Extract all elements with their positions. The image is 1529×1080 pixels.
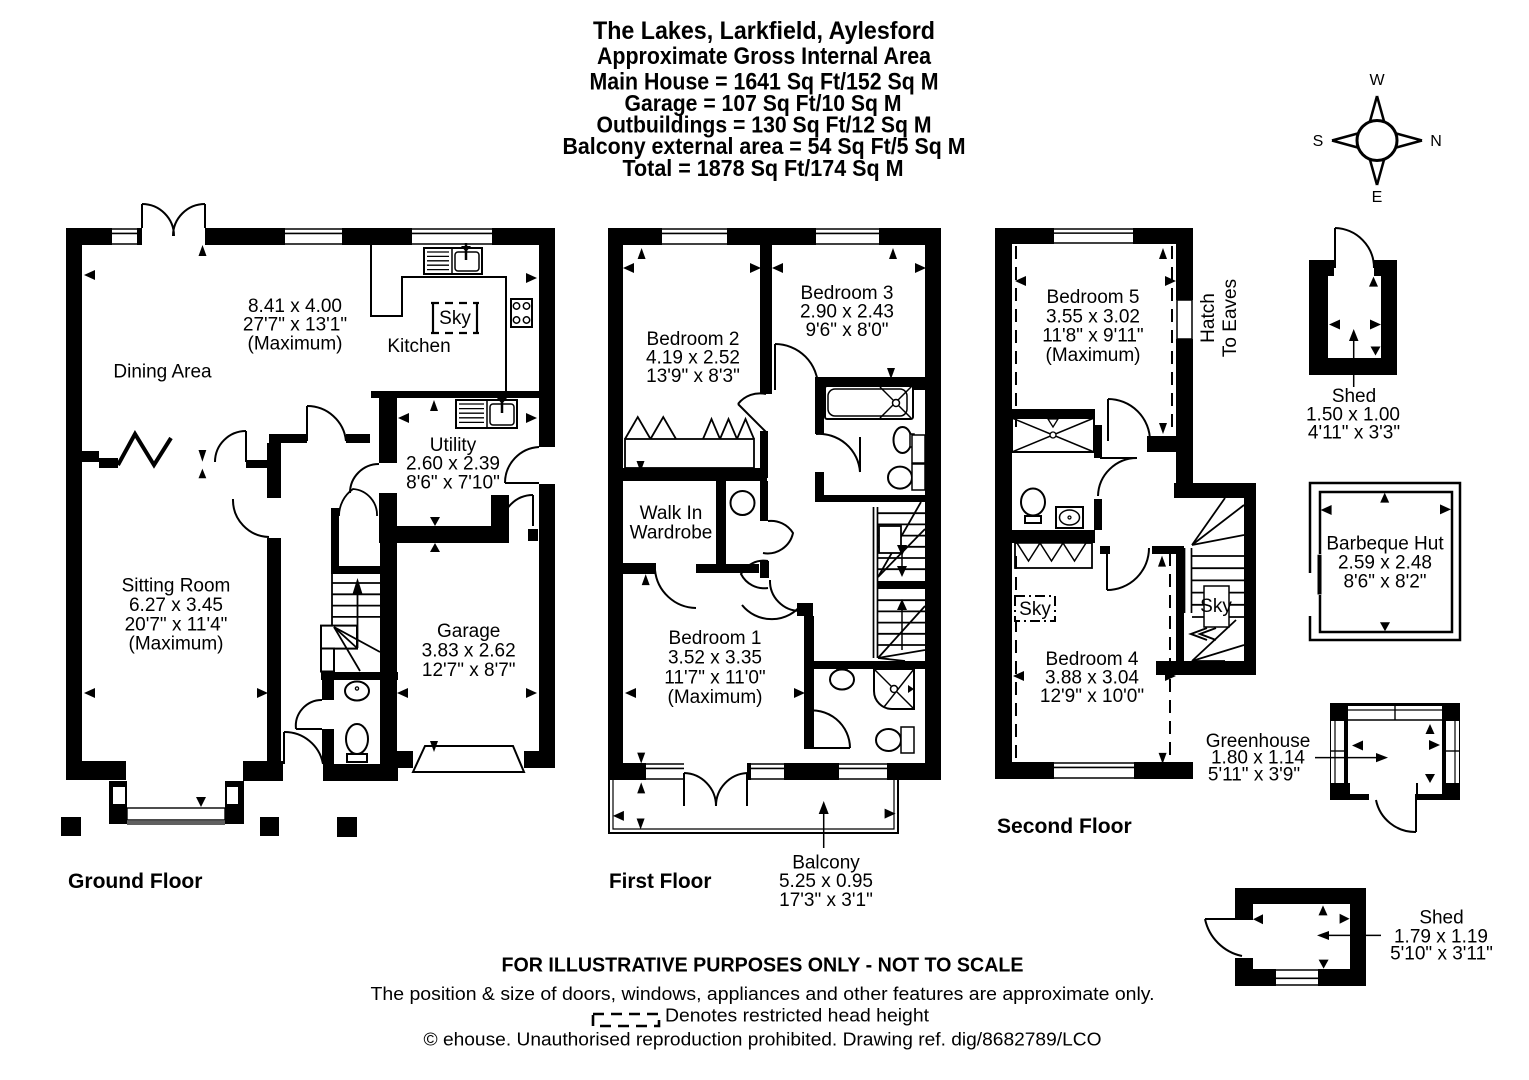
svg-text:3.55 x 3.02: 3.55 x 3.02: [1046, 306, 1140, 327]
svg-text:© ehouse. Unauthorised reprodu: © ehouse. Unauthorised reproduction proh…: [424, 1029, 1102, 1050]
svg-text:W: W: [1369, 72, 1385, 89]
svg-text:E: E: [1372, 189, 1383, 206]
svg-text:Dining Area: Dining Area: [113, 361, 212, 382]
svg-text:To Eaves: To Eaves: [1220, 279, 1241, 357]
svg-text:(Maximum): (Maximum): [129, 634, 224, 655]
svg-text:13'9" x 8'3": 13'9" x 8'3": [646, 366, 740, 387]
svg-text:Denotes restricted head height: Denotes restricted head height: [665, 1005, 930, 1026]
svg-text:Bedroom 5: Bedroom 5: [1047, 287, 1140, 308]
svg-text:3.83 x 2.62: 3.83 x 2.62: [422, 640, 516, 661]
svg-text:Total = 1878 Sq Ft/174 Sq M: Total = 1878 Sq Ft/174 Sq M: [623, 155, 904, 181]
svg-text:11'7" x 11'0": 11'7" x 11'0": [664, 667, 765, 688]
svg-text:5'10" x 3'11": 5'10" x 3'11": [1390, 943, 1493, 964]
svg-text:8'6" x 8'2": 8'6" x 8'2": [1343, 572, 1426, 593]
svg-text:5'11" x 3'9": 5'11" x 3'9": [1208, 765, 1300, 786]
svg-text:(Maximum): (Maximum): [668, 687, 763, 708]
svg-text:Second Floor: Second Floor: [997, 814, 1132, 838]
svg-text:Sky: Sky: [439, 308, 471, 329]
svg-text:Garage: Garage: [437, 621, 500, 642]
svg-text:17'3" x 3'1": 17'3" x 3'1": [779, 890, 873, 911]
svg-text:3.52 x 3.35: 3.52 x 3.35: [668, 648, 762, 669]
svg-text:Barbeque Hut: Barbeque Hut: [1326, 534, 1444, 555]
svg-text:Sky: Sky: [1200, 596, 1232, 617]
svg-text:The position & size of doors,: The position & size of doors, windows, a…: [371, 983, 1155, 1004]
svg-text:N: N: [1430, 133, 1442, 150]
svg-text:First Floor: First Floor: [609, 869, 711, 893]
svg-text:Kitchen: Kitchen: [387, 336, 450, 357]
svg-text:Walk In: Walk In: [640, 503, 703, 524]
svg-text:8'6" x 7'10": 8'6" x 7'10": [406, 472, 500, 493]
svg-text:FOR ILLUSTRATIVE PURPOSES ONLY: FOR ILLUSTRATIVE PURPOSES ONLY - NOT TO …: [502, 955, 1024, 977]
svg-text:Shed: Shed: [1419, 908, 1463, 929]
svg-text:Approximate Gross Internal Are: Approximate Gross Internal Area: [597, 43, 932, 70]
svg-text:6.27 x 3.45: 6.27 x 3.45: [129, 595, 223, 616]
svg-text:9'6" x 8'0": 9'6" x 8'0": [805, 320, 888, 341]
svg-text:Sky: Sky: [1019, 599, 1051, 620]
svg-text:(Maximum): (Maximum): [1046, 345, 1141, 366]
svg-text:12'7" x 8'7": 12'7" x 8'7": [422, 660, 516, 681]
svg-text:Hatch: Hatch: [1198, 293, 1219, 343]
svg-text:Wardrobe: Wardrobe: [630, 523, 713, 544]
svg-text:12'9" x 10'0": 12'9" x 10'0": [1040, 686, 1144, 707]
svg-text:11'8" x 9'11": 11'8" x 9'11": [1042, 326, 1143, 347]
svg-text:The Lakes, Larkfield, Aylesfor: The Lakes, Larkfield, Aylesford: [593, 17, 935, 45]
svg-text:4'11" x 3'3": 4'11" x 3'3": [1308, 423, 1400, 444]
svg-text:2.59 x 2.48: 2.59 x 2.48: [1338, 553, 1432, 574]
svg-text:Bedroom 1: Bedroom 1: [669, 628, 762, 649]
svg-text:20'7" x 11'4": 20'7" x 11'4": [125, 614, 228, 635]
svg-text:Ground Floor: Ground Floor: [68, 869, 203, 893]
svg-text:(Maximum): (Maximum): [248, 333, 343, 354]
svg-text:Sitting Room: Sitting Room: [122, 576, 231, 597]
svg-text:S: S: [1313, 133, 1324, 150]
